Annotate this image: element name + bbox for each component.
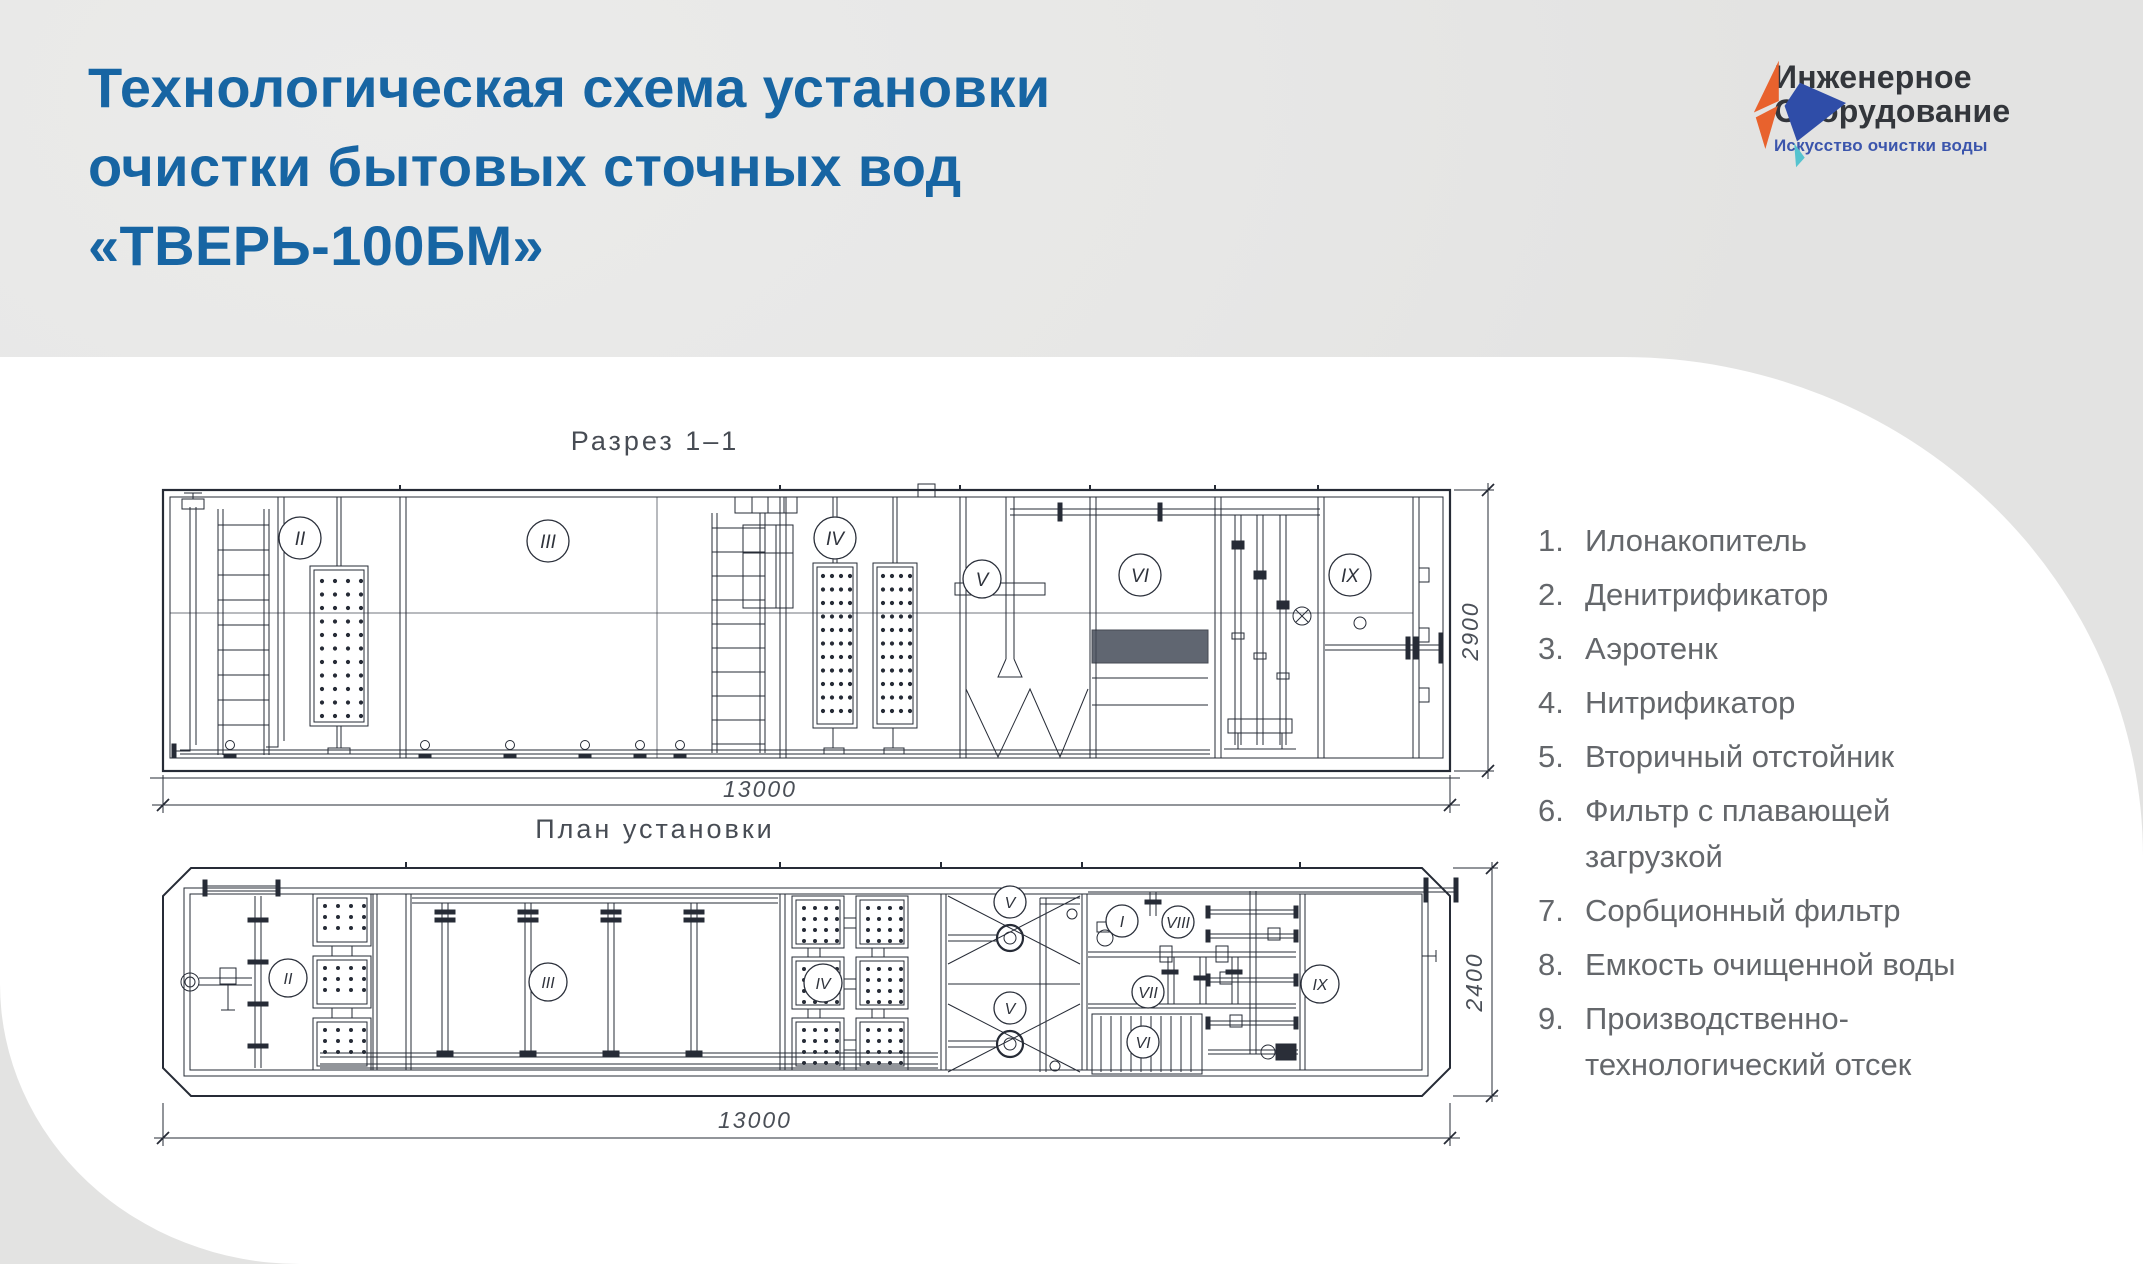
section-drawing: II III IV V VI IX 13000 2900 bbox=[160, 483, 1495, 818]
legend-item: 9. Производственно-технологический отсек bbox=[1538, 996, 2018, 1088]
plan-drawing: II III IV V V I VIII VII VI IX 13000 240… bbox=[160, 858, 1520, 1158]
legend-item-number: 9. bbox=[1538, 996, 1585, 1088]
plan-label-iii: III bbox=[541, 975, 555, 992]
section-label-ix: IX bbox=[1341, 566, 1360, 587]
legend-item: 3. Аэротенк bbox=[1538, 626, 2018, 672]
legend-item-number: 7. bbox=[1538, 888, 1585, 934]
section-height-dim: 2900 bbox=[1457, 601, 1483, 661]
section-label-vi: VI bbox=[1131, 566, 1150, 587]
plan-label-ix: IX bbox=[1312, 977, 1328, 994]
plan-label-iv: IV bbox=[815, 976, 831, 993]
plan-length-dim: 13000 bbox=[718, 1107, 792, 1133]
section-length-dim: 13000 bbox=[723, 776, 797, 802]
legend-item: 6. Фильтр с плавающей загрузкой bbox=[1538, 788, 2018, 880]
legend-item-number: 6. bbox=[1538, 788, 1585, 880]
legend-item: 8. Емкость очищенной воды bbox=[1538, 942, 2018, 988]
plan-label-v-bottom: V bbox=[1005, 1001, 1017, 1018]
legend-item-text: Нитрификатор bbox=[1585, 680, 2010, 726]
legend-item-number: 1. bbox=[1538, 518, 1585, 564]
legend-item-text: Вторичный отстойник bbox=[1585, 734, 2010, 780]
legend-item-text: Фильтр с плавающей загрузкой bbox=[1585, 788, 2010, 880]
legend-item-text: Емкость очищенной воды bbox=[1585, 942, 2010, 988]
legend-item: 5. Вторичный отстойник bbox=[1538, 734, 2018, 780]
legend-item-number: 4. bbox=[1538, 680, 1585, 726]
slide: Технологическая схема установки очистки … bbox=[0, 0, 2143, 1264]
section-label-ii: II bbox=[295, 529, 306, 550]
legend-item-number: 8. bbox=[1538, 942, 1585, 988]
legend-item-number: 5. bbox=[1538, 734, 1585, 780]
logo-mark-icon bbox=[1750, 58, 1846, 170]
legend-item-text: Сорбционный фильтр bbox=[1585, 888, 2010, 934]
plan-label-vi: VI bbox=[1135, 1035, 1151, 1052]
plan-view-title: План установки bbox=[395, 814, 915, 845]
legend-item-text: Денитрификатор bbox=[1585, 572, 2010, 618]
legend-item: 4. Нитрификатор bbox=[1538, 680, 2018, 726]
section-label-iii: III bbox=[540, 532, 557, 553]
page-title: Технологическая схема установки очистки … bbox=[88, 48, 1051, 285]
company-logo: Инженерное Оборудование Искусство очистк… bbox=[1750, 58, 2010, 156]
legend-item: 2. Денитрификатор bbox=[1538, 572, 2018, 618]
page-title-line2: очистки бытовых сточных вод bbox=[88, 127, 1051, 206]
legend-item-number: 2. bbox=[1538, 572, 1585, 618]
plan-label-vii: VII bbox=[1138, 985, 1158, 1002]
page-title-line3: «ТВЕРЬ-100БМ» bbox=[88, 206, 1051, 285]
plan-width-dim: 2400 bbox=[1461, 952, 1487, 1012]
section-label-iv: IV bbox=[826, 529, 846, 550]
plan-label-v-top: V bbox=[1005, 895, 1017, 912]
legend-item: 1. Илонакопитель bbox=[1538, 518, 2018, 564]
legend-item-text: Илонакопитель bbox=[1585, 518, 2010, 564]
page-title-line1: Технологическая схема установки bbox=[88, 48, 1051, 127]
legend-item: 7. Сорбционный фильтр bbox=[1538, 888, 2018, 934]
plan-label-ii: II bbox=[284, 971, 293, 988]
legend-item-text: Аэротенк bbox=[1585, 626, 2010, 672]
plan-label-i: I bbox=[1120, 914, 1125, 931]
legend: 1. Илонакопитель 2. Денитрификатор 3. Аэ… bbox=[1538, 518, 2018, 1096]
section-view-title: Разрез 1–1 bbox=[395, 426, 915, 457]
legend-item-number: 3. bbox=[1538, 626, 1585, 672]
legend-item-text: Производственно-технологический отсек bbox=[1585, 996, 2010, 1088]
plan-label-viii: VIII bbox=[1166, 915, 1191, 932]
